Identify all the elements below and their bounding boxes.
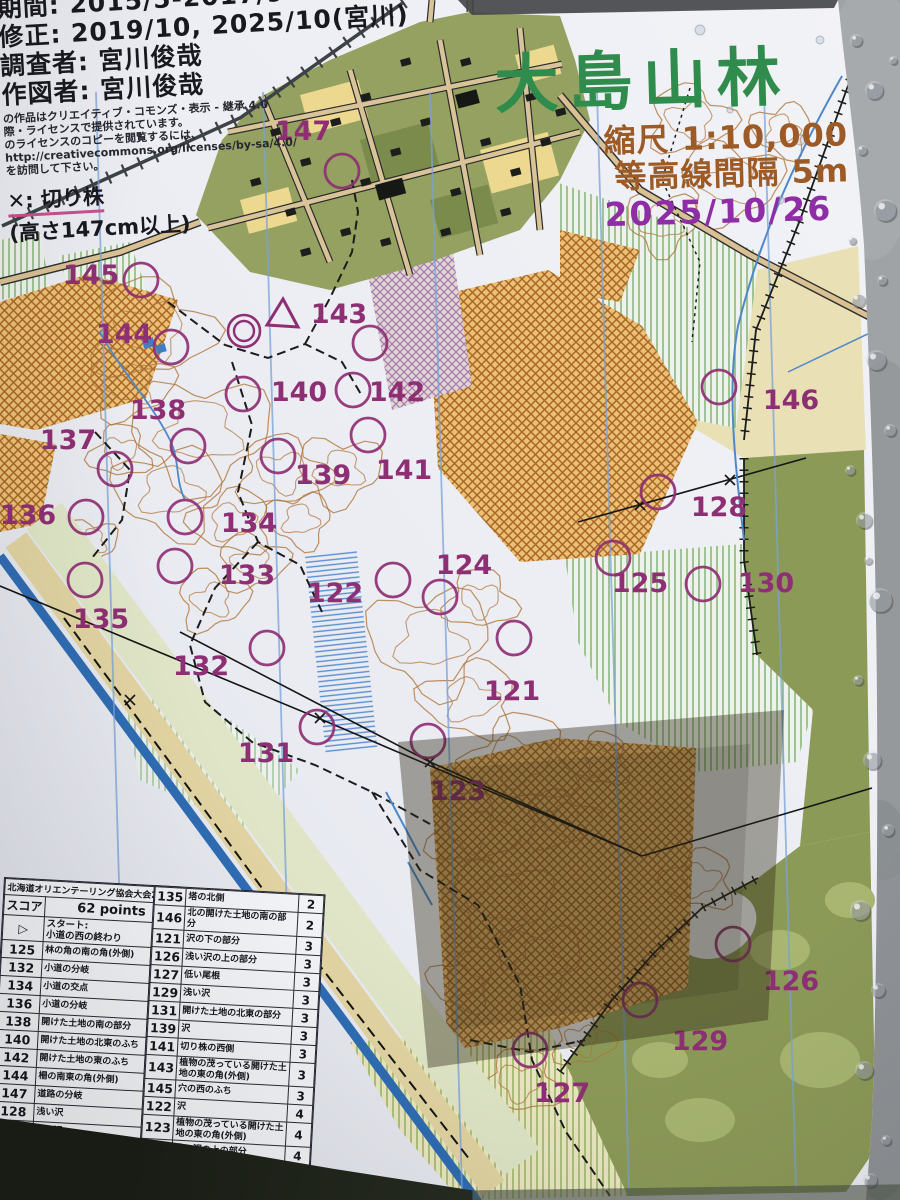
control-number: 122 bbox=[143, 1096, 175, 1116]
control-number-label: 145 bbox=[63, 260, 119, 291]
control-number-label: 142 bbox=[369, 377, 425, 408]
control-number: 144 bbox=[0, 1065, 36, 1085]
control-number-label: 139 bbox=[295, 460, 351, 491]
control-number-label: 128 bbox=[691, 492, 747, 523]
control-points: 3 bbox=[293, 990, 319, 1009]
control-number: 146 bbox=[153, 905, 185, 931]
control-number: 140 bbox=[0, 1029, 38, 1049]
control-number-label: 131 bbox=[238, 738, 294, 769]
control-number-label: 130 bbox=[738, 568, 794, 599]
control-number-label: 127 bbox=[534, 1078, 590, 1109]
control-number: 145 bbox=[144, 1078, 176, 1098]
control-number-label: 124 bbox=[436, 550, 492, 581]
control-number-label: 144 bbox=[96, 319, 152, 350]
control-number-label: 146 bbox=[763, 385, 819, 416]
map-credits-block: 期間: 2015/5-2017/9 修正: 2019/10, 2025/10(宮… bbox=[0, 0, 469, 248]
control-number-label: 132 bbox=[173, 651, 229, 682]
control-points: 3 bbox=[290, 1044, 316, 1063]
control-number-label: 143 bbox=[311, 299, 367, 330]
control-number-label: 135 bbox=[73, 604, 129, 635]
control-number: 132 bbox=[0, 957, 42, 977]
control-number: 138 bbox=[0, 1011, 39, 1031]
control-number bbox=[0, 1155, 31, 1174]
control-number: 136 bbox=[0, 993, 40, 1013]
control-number-label: 134 bbox=[221, 508, 277, 539]
control-points: 4 bbox=[287, 1104, 313, 1123]
control-number-label: 138 bbox=[130, 395, 186, 426]
control-number: 128 bbox=[0, 1101, 34, 1121]
control-points: 2 bbox=[297, 912, 323, 937]
control-number: 124 bbox=[141, 1138, 173, 1158]
control-points: 3 bbox=[292, 1008, 318, 1027]
control-number: 135 bbox=[154, 887, 186, 907]
control-points: 4 bbox=[285, 1122, 311, 1147]
control-number-label: 141 bbox=[376, 455, 432, 486]
control-number-label: 125 bbox=[612, 568, 668, 599]
score-label: スコア bbox=[4, 895, 46, 917]
control-number: 139 bbox=[147, 1018, 179, 1038]
control-points: 3 bbox=[289, 1062, 315, 1087]
start-symbol: ▷ bbox=[2, 914, 44, 941]
control-number: 142 bbox=[0, 1047, 37, 1067]
control-number-label: 122 bbox=[307, 578, 363, 609]
control-points: 3 bbox=[296, 936, 322, 955]
control-points: 3 bbox=[294, 972, 320, 991]
control-number-label: 136 bbox=[0, 500, 56, 531]
control-number: 126 bbox=[151, 947, 183, 967]
control-points: 4 bbox=[284, 1146, 310, 1165]
control-number-label: 126 bbox=[763, 966, 819, 997]
control-number: 131 bbox=[148, 1000, 180, 1020]
control-number-label: 121 bbox=[484, 676, 540, 707]
control-points: 3 bbox=[295, 954, 321, 973]
control-number-label: 137 bbox=[40, 425, 96, 456]
map-title-block: 大島山林 縮尺 1:10,000 等高線間隔 5m 2025/10/26 bbox=[437, 24, 851, 239]
control-number: 121 bbox=[152, 929, 184, 949]
score-table-right: 135塔の北側2146北の開けた土地の南の部分2121沢の下の部分3126浅い沢… bbox=[139, 886, 324, 1184]
control-points: 4 bbox=[283, 1164, 309, 1183]
control-number: 147 bbox=[0, 1083, 35, 1103]
control-number: 130 bbox=[0, 1119, 33, 1139]
control-number: 125 bbox=[1, 939, 43, 959]
control-points: 2 bbox=[298, 894, 324, 913]
control-number: 134 bbox=[0, 975, 41, 995]
map-photo: 1211221231241251261271281291301311321331… bbox=[0, 0, 900, 1200]
control-points: 3 bbox=[291, 1026, 317, 1045]
control-number: 127 bbox=[150, 965, 182, 985]
control-number: 143 bbox=[145, 1054, 177, 1080]
control-number: 123 bbox=[142, 1114, 174, 1140]
control-points: 3 bbox=[288, 1086, 314, 1105]
control-number-label: 140 bbox=[271, 377, 327, 408]
control-number: 133 bbox=[0, 1137, 32, 1157]
control-number-label: 133 bbox=[219, 560, 275, 591]
control-number: 141 bbox=[146, 1036, 178, 1056]
map-title: 大島山林 bbox=[437, 24, 847, 127]
control-number: 129 bbox=[149, 982, 181, 1002]
control-number: 137 bbox=[140, 1156, 172, 1176]
